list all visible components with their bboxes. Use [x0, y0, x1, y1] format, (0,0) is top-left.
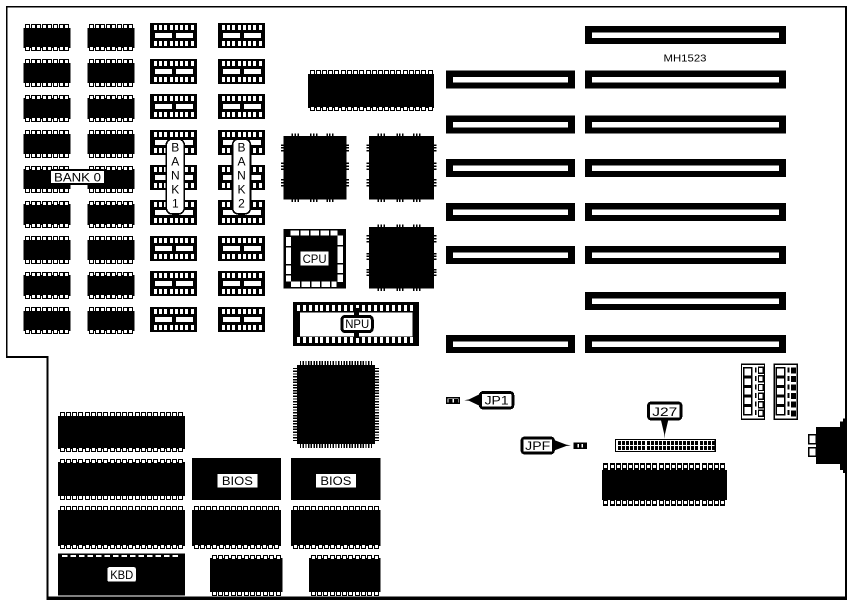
svg-text:J27: J27 — [652, 405, 677, 419]
svg-text:JP1: JP1 — [485, 394, 509, 408]
svg-text:BIOS: BIOS — [222, 474, 253, 488]
svg-text:K: K — [171, 183, 179, 197]
svg-text:N: N — [237, 169, 246, 183]
svg-text:N: N — [171, 169, 180, 183]
svg-text:BANK 0: BANK 0 — [54, 170, 101, 184]
svg-text:KBD: KBD — [110, 568, 133, 582]
svg-text:MH1523: MH1523 — [664, 53, 707, 65]
svg-text:B: B — [237, 141, 245, 155]
svg-text:JPF: JPF — [525, 439, 550, 453]
svg-text:2: 2 — [238, 197, 245, 211]
svg-text:K: K — [237, 183, 245, 197]
svg-text:CPU: CPU — [303, 252, 327, 266]
svg-text:NPU: NPU — [345, 319, 369, 331]
svg-text:A: A — [237, 155, 245, 169]
svg-text:A: A — [171, 155, 179, 169]
svg-text:1: 1 — [172, 197, 179, 211]
svg-text:BIOS: BIOS — [320, 474, 351, 488]
svg-text:B: B — [171, 141, 179, 155]
